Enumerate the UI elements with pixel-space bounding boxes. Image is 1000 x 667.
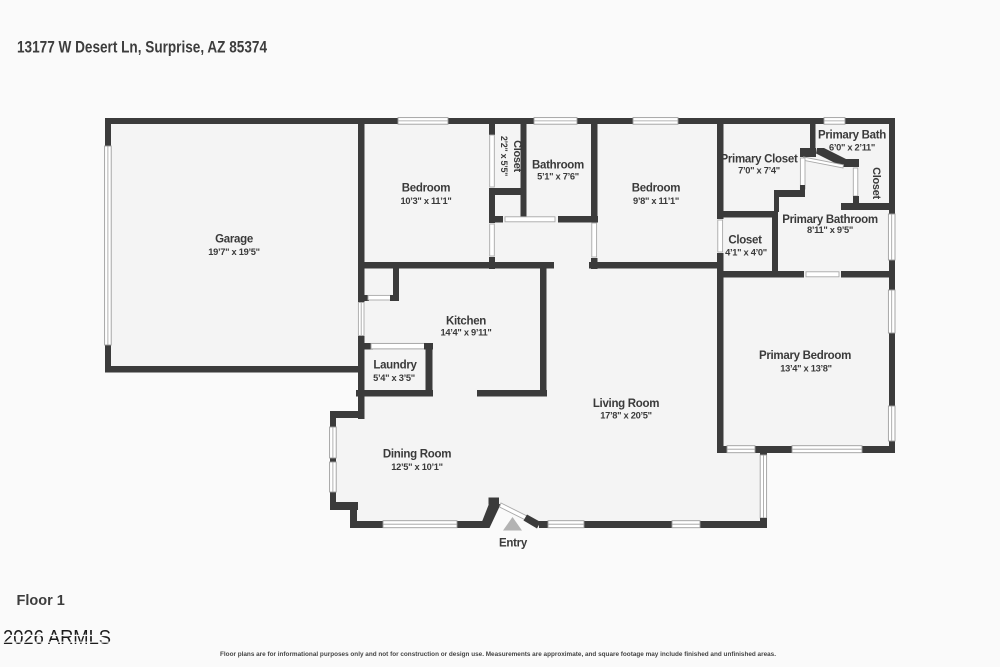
svg-text:Closet: Closet xyxy=(728,235,762,247)
svg-text:Garage: Garage xyxy=(215,234,253,246)
svg-text:12’5" x 10’1": 12’5" x 10’1" xyxy=(391,462,442,472)
svg-text:6’0" x 2’11": 6’0" x 2’11" xyxy=(829,143,875,153)
svg-text:2026 ARMLS: 2026 ARMLS xyxy=(3,626,111,649)
svg-text:4’1" x 4’0": 4’1" x 4’0" xyxy=(725,248,767,258)
svg-text:7’0" x 7’4": 7’0" x 7’4" xyxy=(738,166,780,176)
svg-text:5’1" x 7’6": 5’1" x 7’6" xyxy=(537,172,579,182)
svg-text:9’8" x 11’1": 9’8" x 11’1" xyxy=(633,196,679,206)
svg-text:Primary Bedroom: Primary Bedroom xyxy=(759,350,851,362)
svg-text:Bedroom: Bedroom xyxy=(632,183,680,195)
svg-text:Bedroom: Bedroom xyxy=(402,183,450,195)
svg-text:13’4" x 13’8": 13’4" x 13’8" xyxy=(780,364,831,374)
svg-text:14’4" x 9’11": 14’4" x 9’11" xyxy=(441,328,492,338)
svg-text:Bathroom: Bathroom xyxy=(532,160,584,172)
svg-text:13177 W Desert Ln, Surprise, A: 13177 W Desert Ln, Surprise, AZ 85374 xyxy=(17,38,267,57)
svg-text:Living Room: Living Room xyxy=(593,398,659,410)
svg-text:17’8" x 20’5": 17’8" x 20’5" xyxy=(600,411,651,421)
svg-text:2’2" x 5’5": 2’2" x 5’5" xyxy=(499,136,509,176)
svg-text:Primary Bath: Primary Bath xyxy=(818,130,886,142)
svg-text:Laundry: Laundry xyxy=(373,360,417,372)
svg-text:Floor 1: Floor 1 xyxy=(17,593,65,609)
svg-text:Entry: Entry xyxy=(499,538,528,550)
svg-text:Closet: Closet xyxy=(511,140,523,172)
svg-text:Dining Room: Dining Room xyxy=(383,449,451,461)
svg-text:10’3" x 11’1": 10’3" x 11’1" xyxy=(401,196,452,206)
svg-text:Floor plans are for informatio: Floor plans are for informational purpos… xyxy=(220,651,776,658)
svg-text:19’7" x 19’5": 19’7" x 19’5" xyxy=(208,247,259,257)
svg-text:5’4" x 3’5": 5’4" x 3’5" xyxy=(373,373,415,383)
svg-text:8’11" x 9’5": 8’11" x 9’5" xyxy=(807,225,853,235)
svg-text:Kitchen: Kitchen xyxy=(446,316,486,328)
svg-text:Primary Closet: Primary Closet xyxy=(721,154,798,166)
svg-text:Closet: Closet xyxy=(870,167,882,199)
